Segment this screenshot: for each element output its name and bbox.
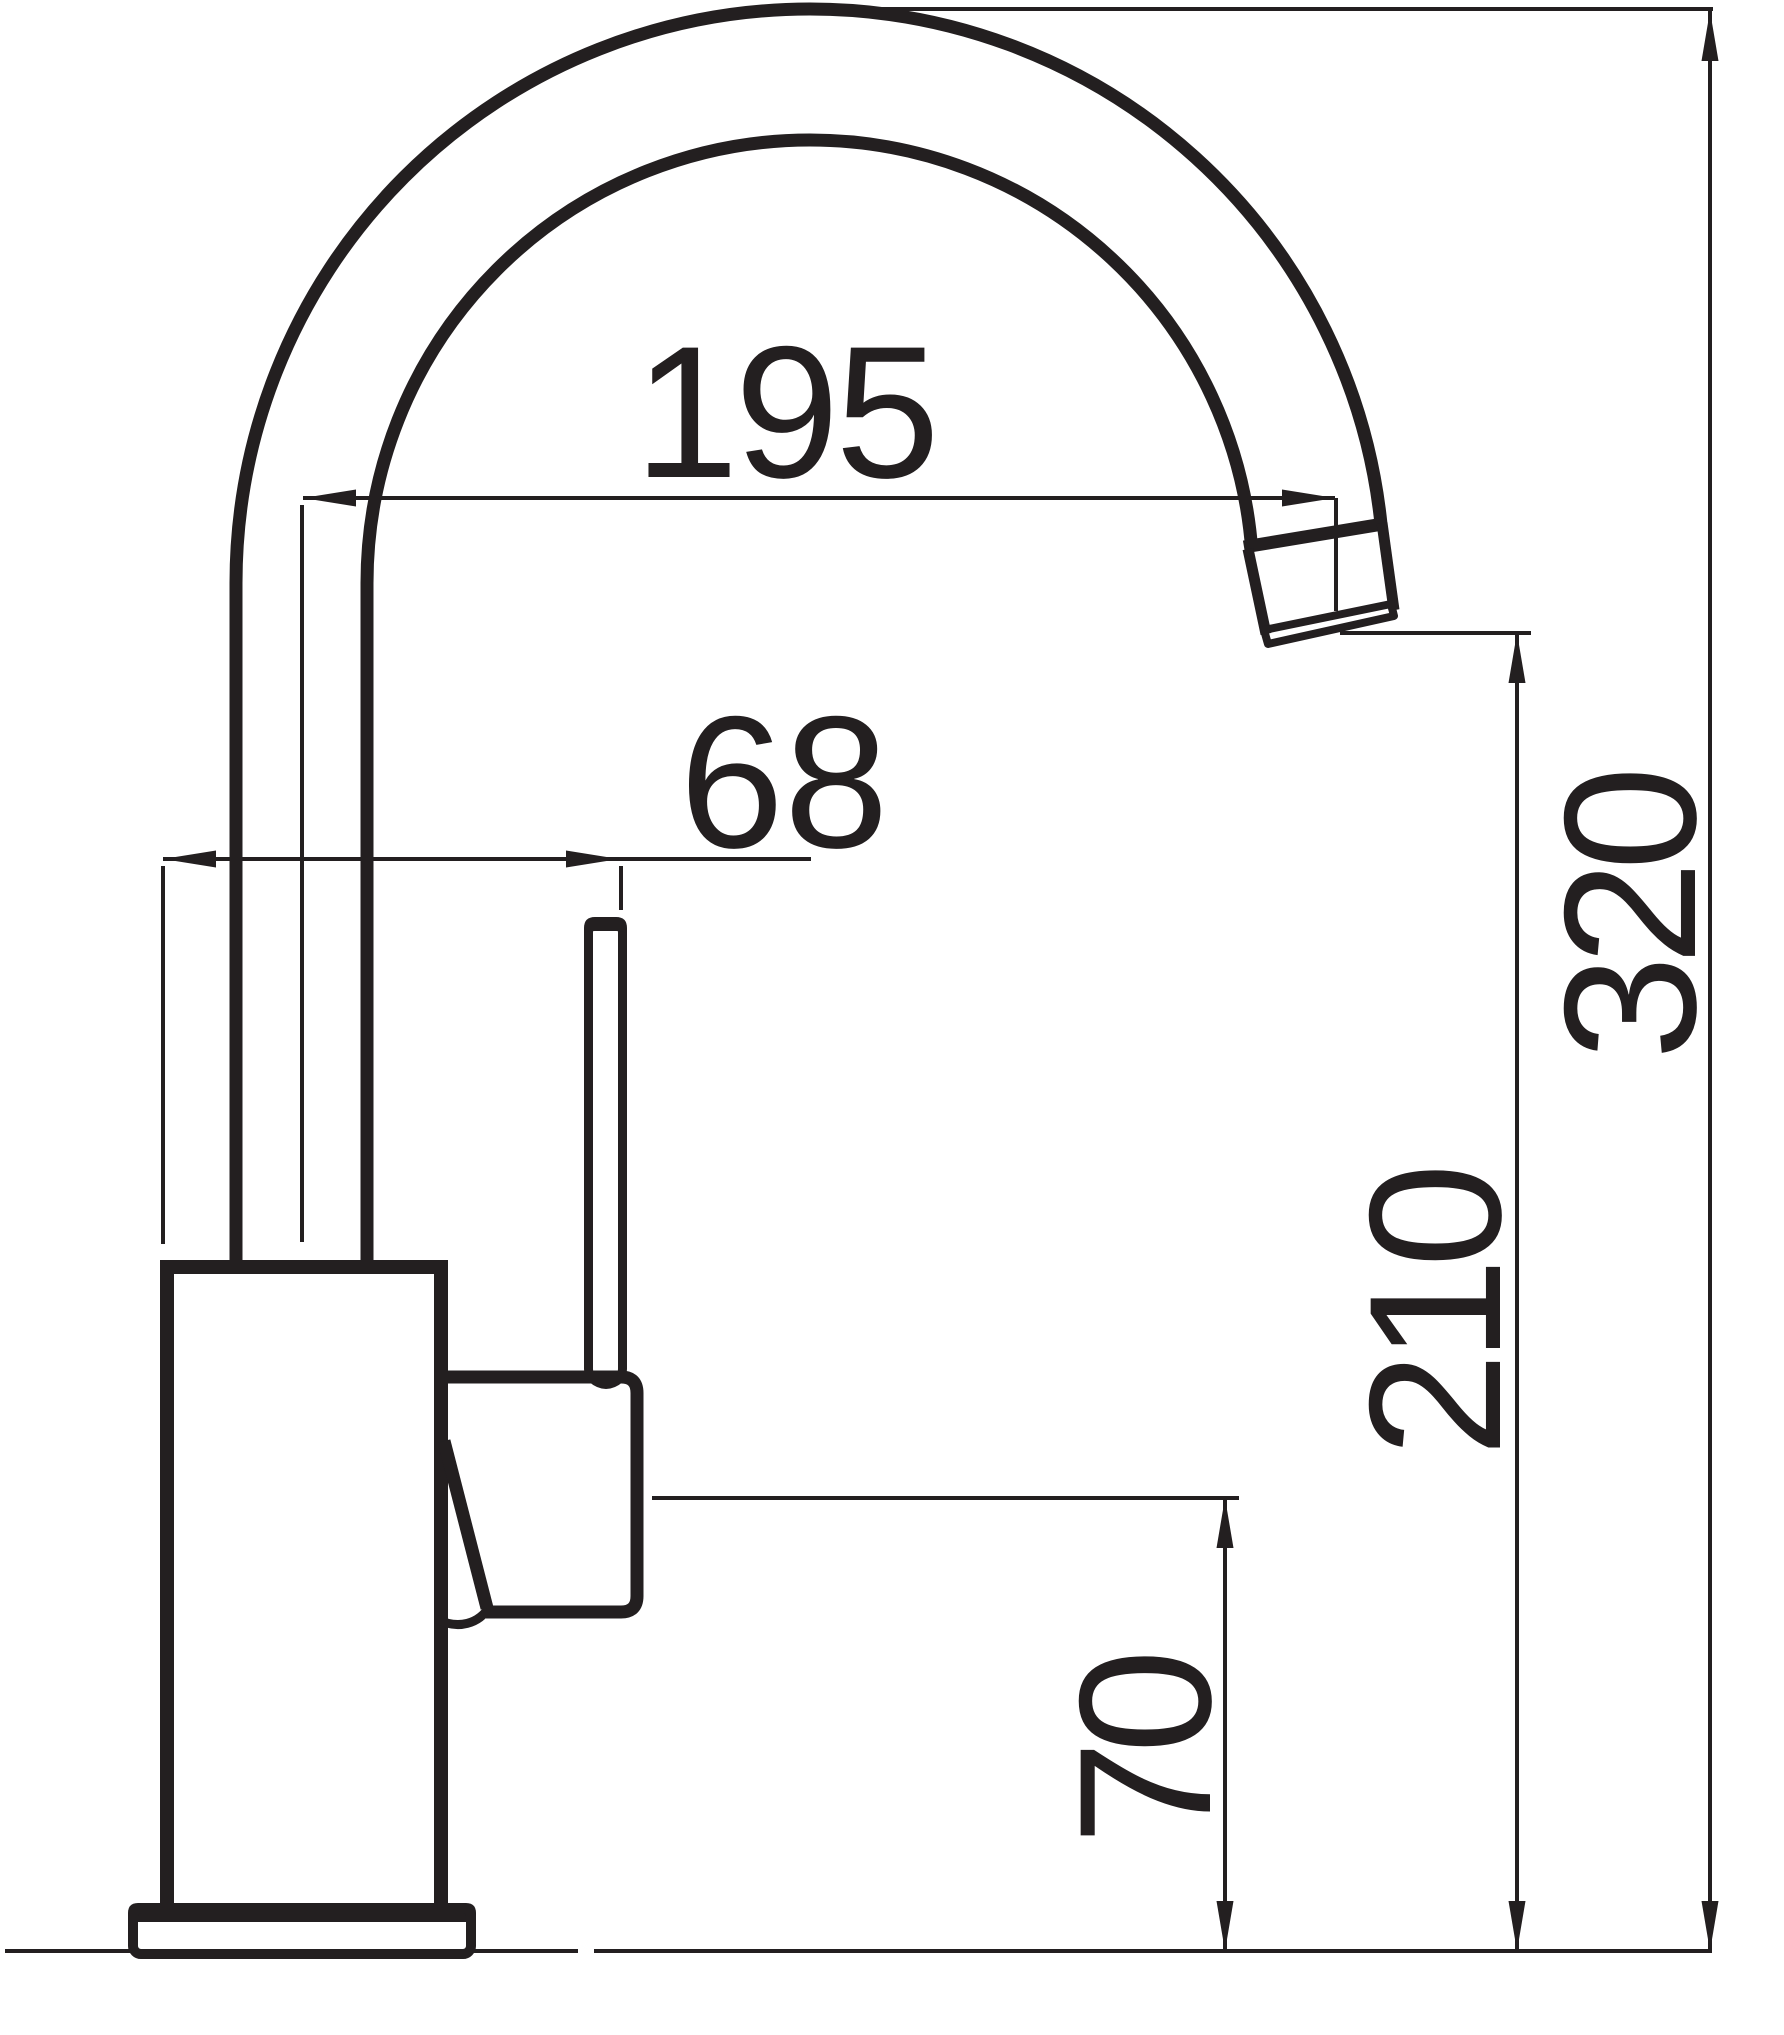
svg-text:210: 210 (1330, 1163, 1540, 1457)
svg-text:320: 320 (1525, 766, 1735, 1060)
svg-text:68: 68 (679, 677, 888, 887)
svg-text:195: 195 (634, 307, 936, 517)
svg-text:70: 70 (1040, 1649, 1250, 1845)
